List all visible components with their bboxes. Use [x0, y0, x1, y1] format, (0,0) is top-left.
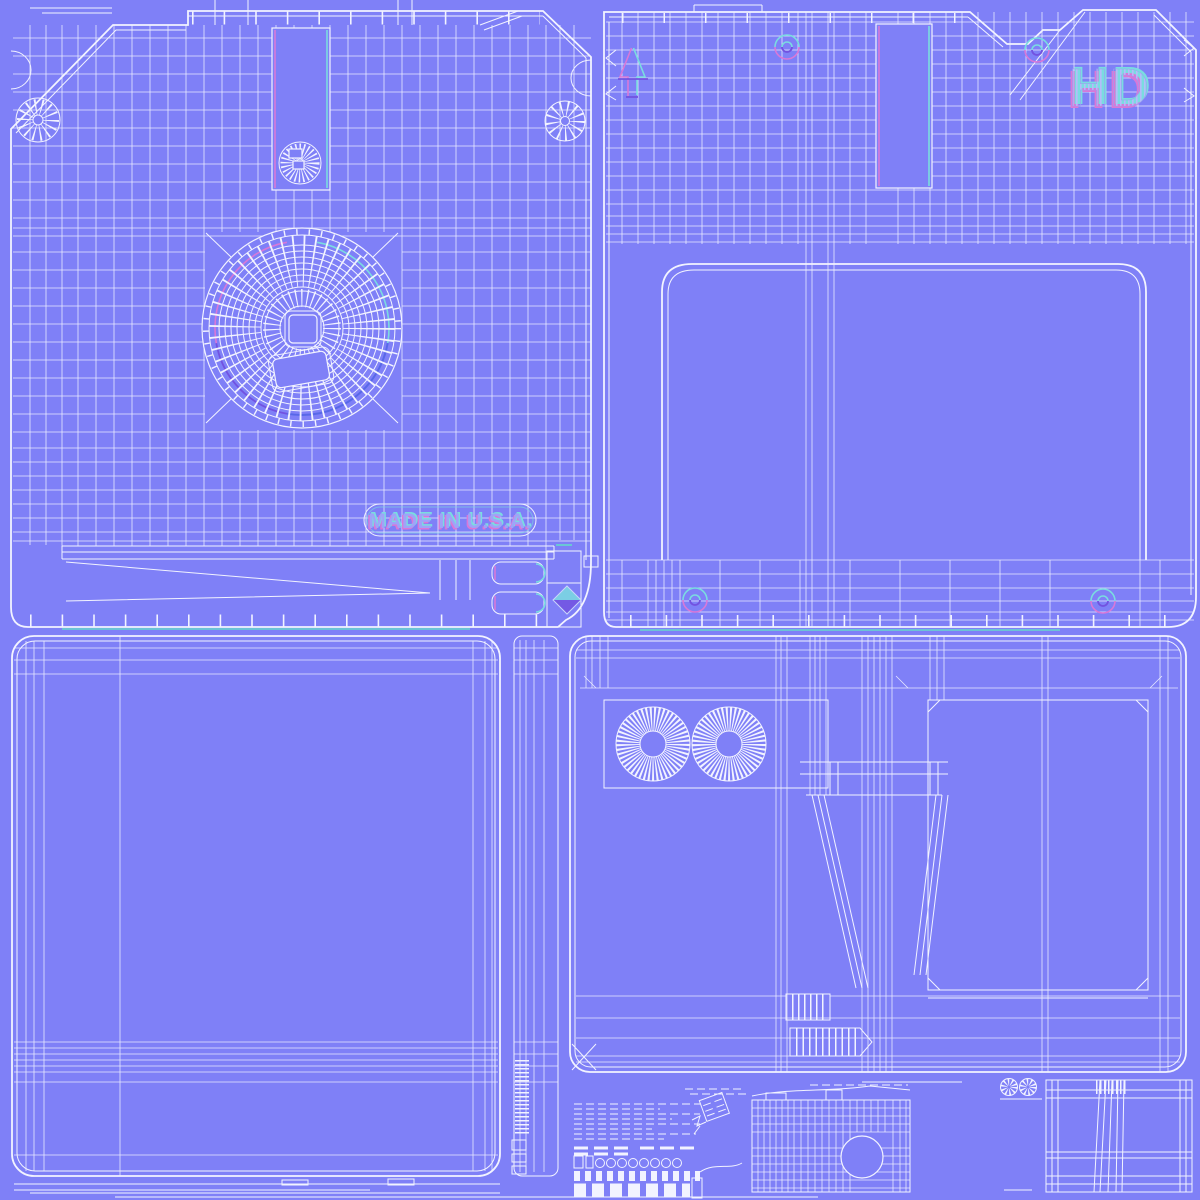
shutter-window-back — [876, 24, 932, 188]
wireframe-uv-layout: MADE IN U.S.A. MADE IN U.S.A. MADE IN U.… — [0, 0, 1200, 1200]
uv-texture-canvas: MADE IN U.S.A. MADE IN U.S.A. MADE IN U.… — [0, 0, 1200, 1200]
hd-logo-text: HD — [1069, 58, 1151, 118]
shutter-part-hole — [841, 1136, 883, 1178]
spindle-hub-mesh — [202, 228, 402, 428]
made-in-usa-stamp: MADE IN U.S.A. MADE IN U.S.A. MADE IN U.… — [364, 504, 536, 536]
shutter-window-front — [272, 28, 330, 190]
made-in-usa-text: MADE IN U.S.A. — [368, 510, 531, 533]
background — [0, 0, 1200, 1200]
hd-logo: HD HD HD — [1067, 56, 1153, 120]
shutter-relief-circle — [279, 142, 321, 184]
